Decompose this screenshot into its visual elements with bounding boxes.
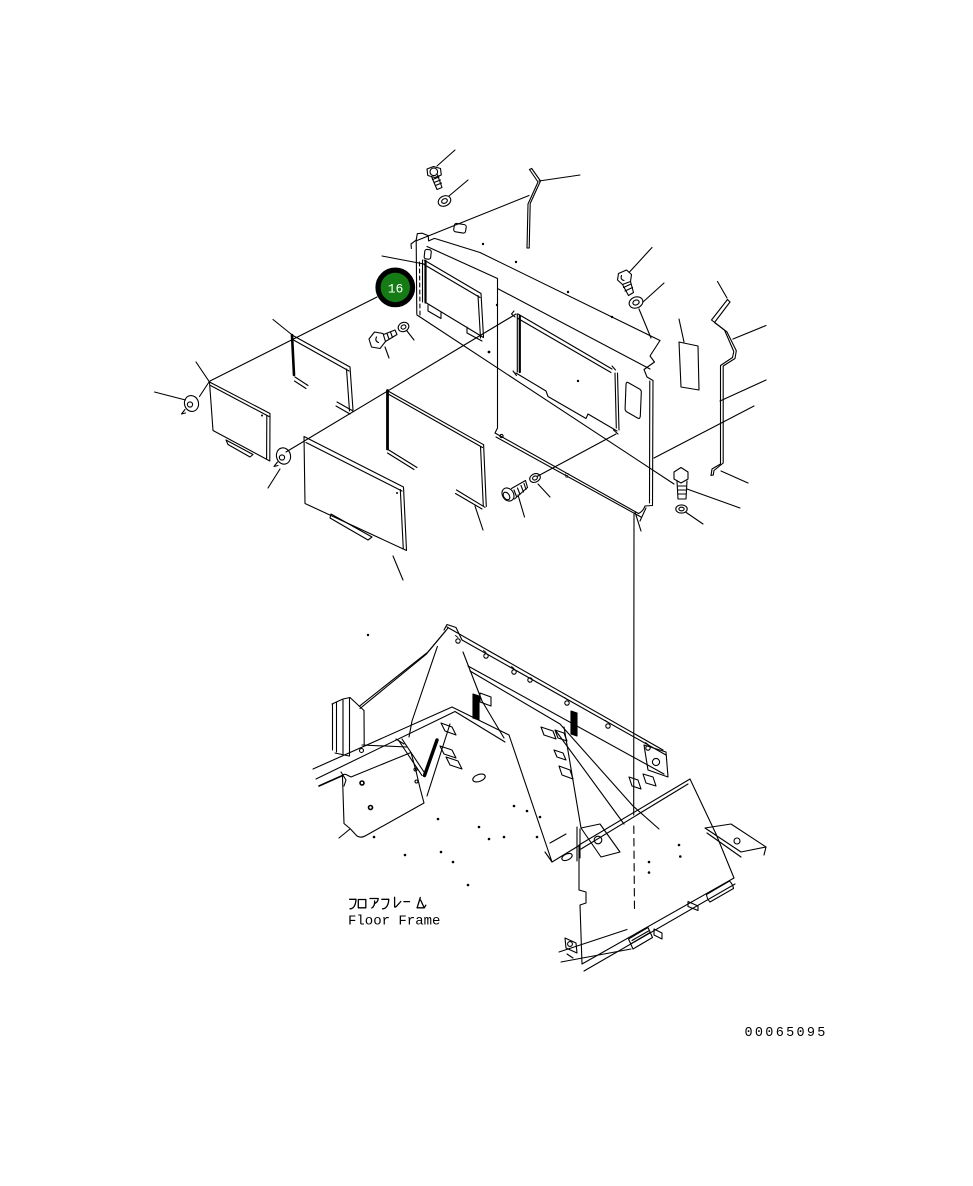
svg-text:16: 16	[388, 282, 404, 297]
svg-text:00065095: 00065095	[745, 1026, 828, 1041]
svg-text:E: E	[565, 473, 569, 480]
svg-text:Floor Frame: Floor Frame	[348, 914, 440, 930]
